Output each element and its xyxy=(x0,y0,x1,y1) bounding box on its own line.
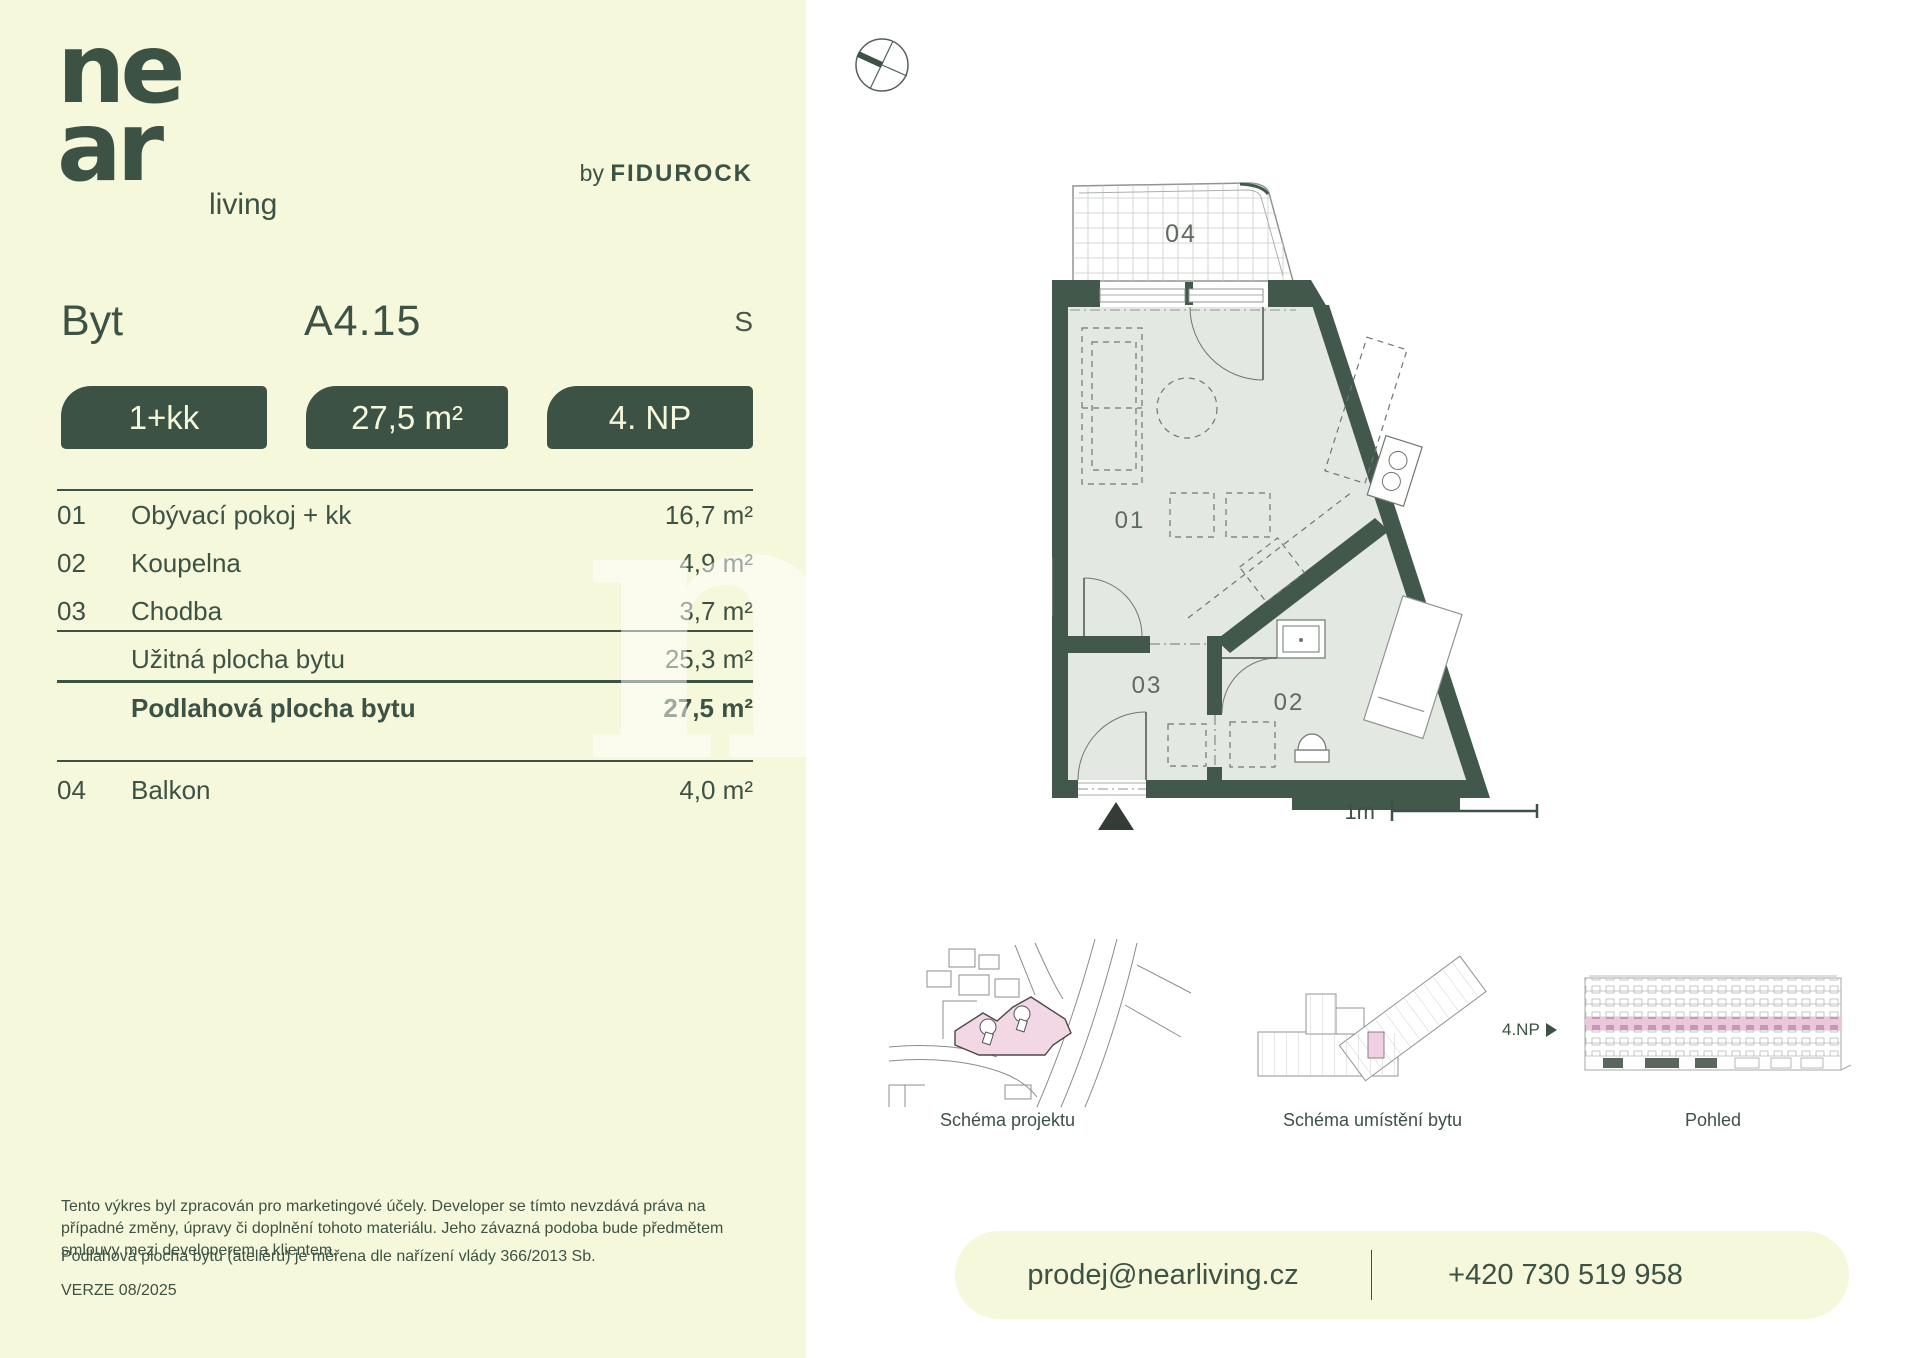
floor-pointer-label: 4.NP xyxy=(1502,1020,1540,1040)
room-name: Balkon xyxy=(131,773,679,807)
room-area: 4,9 m² xyxy=(679,546,753,580)
entrance-arrow xyxy=(1098,802,1134,830)
room-name: Obývací pokoj + kk xyxy=(131,498,665,532)
site-plan-schematic xyxy=(885,935,1195,1110)
room-area: 4,0 m² xyxy=(679,773,753,807)
room-number: 02 xyxy=(57,546,131,580)
info-panel: ne ar living by FIDUROCK Byt A4.15 S 1+k… xyxy=(0,0,806,1358)
kitchen-sink xyxy=(1367,436,1422,507)
balcony-window xyxy=(1100,289,1263,302)
room-area: 16,7 m² xyxy=(665,498,753,532)
divider xyxy=(57,760,753,762)
compass-icon xyxy=(853,36,913,96)
room-label-02: 02 xyxy=(1274,689,1305,716)
entrance-opening xyxy=(1078,780,1146,798)
contact-bar: prodej@nearliving.cz +420 730 519 958 xyxy=(955,1231,1849,1319)
unit-highlight xyxy=(1368,1032,1384,1058)
summary-label: Užitná plocha bytu xyxy=(131,642,665,676)
table-row: 02 Koupelna 4,9 m² xyxy=(57,546,753,580)
right-arrow-icon xyxy=(1546,1023,1557,1037)
room-name: Koupelna xyxy=(131,546,679,580)
summary-row-floor-area: Podlahová plocha bytu 27,5 m² xyxy=(57,691,753,725)
elevation-schematic xyxy=(1575,970,1855,1085)
summary-label: Podlahová plocha bytu xyxy=(131,691,663,725)
divider xyxy=(57,680,753,683)
site-plan-caption: Schéma projektu xyxy=(900,1110,1115,1131)
table-row: 01 Obývací pokoj + kk 16,7 m² xyxy=(57,498,753,532)
room-number: 03 xyxy=(57,594,131,628)
balcony-04: 04 xyxy=(1073,183,1293,281)
room-name: Chodba xyxy=(131,594,679,628)
room-number: 01 xyxy=(57,498,131,532)
room-label-03: 03 xyxy=(1132,672,1163,699)
floor-plan: 04 xyxy=(1040,150,1600,880)
floor-pointer: 4.NP xyxy=(1502,1020,1557,1040)
version-label: VERZE 08/2025 xyxy=(61,1280,767,1302)
room-area: 3,7 m² xyxy=(679,594,753,628)
project-highlight xyxy=(955,997,1071,1055)
measurement-note: Podlahová plocha bytu (ateliéru) je měře… xyxy=(61,1246,767,1268)
elevation-caption: Pohled xyxy=(1600,1110,1826,1131)
unit-location-caption: Schéma umístění bytu xyxy=(1250,1110,1495,1131)
unit-location-schematic xyxy=(1250,950,1515,1105)
email-cell: prodej@nearliving.cz xyxy=(955,1259,1371,1292)
room-label-04: 04 xyxy=(1165,220,1197,248)
room-table: 01 Obývací pokoj + kk 16,7 m² 02 Koupeln… xyxy=(57,0,753,900)
floorplan-datasheet: { "colors": { "cream": "#F6F8DB", "brand… xyxy=(0,0,1920,1358)
svg-text:1m: 1m xyxy=(1344,799,1375,824)
phone-cell: +420 730 519 958 xyxy=(1372,1259,1849,1292)
divider xyxy=(57,489,753,491)
phone-link[interactable]: +420 730 519 958 xyxy=(1448,1259,1683,1292)
table-row-balcony: 04 Balkon 4,0 m² xyxy=(57,773,753,807)
divider xyxy=(57,630,753,632)
email-link[interactable]: prodej@nearliving.cz xyxy=(1027,1259,1298,1292)
summary-value: 27,5 m² xyxy=(663,691,753,725)
summary-row-usable-area: Užitná plocha bytu 25,3 m² xyxy=(57,642,753,676)
room-number: 04 xyxy=(57,773,131,807)
room-label-01: 01 xyxy=(1115,507,1146,534)
summary-value: 25,3 m² xyxy=(665,642,753,676)
table-row: 03 Chodba 3,7 m² xyxy=(57,594,753,628)
